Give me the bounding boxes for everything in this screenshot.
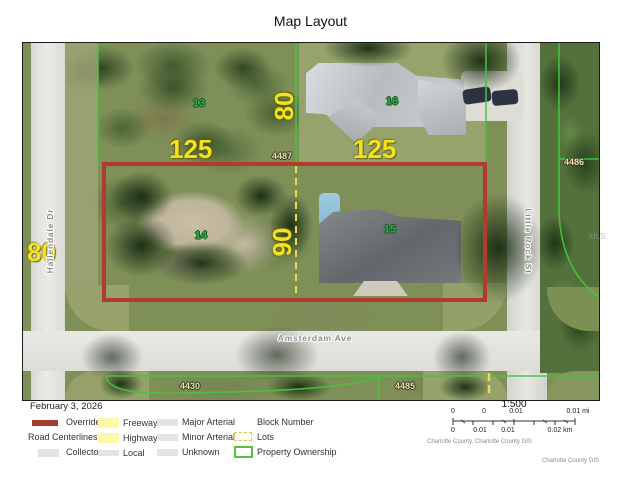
dimension-label: 125 [169, 136, 212, 162]
ownership-line [559, 43, 599, 297]
page-title: Map Layout [0, 13, 621, 29]
local-swatch [98, 450, 119, 456]
scale-mi-tick: 0 [451, 408, 455, 415]
gis-credit-right: Charlotte County GIS [542, 458, 599, 464]
legend-property-ownership-label: Property Ownership [257, 447, 337, 457]
minor-arterial-swatch [157, 434, 178, 441]
legend-road-centerlines-label: Road Centerlines [28, 432, 98, 442]
unknown-swatch [157, 449, 178, 456]
block-number: 4486 [564, 158, 584, 167]
collector-swatch [38, 449, 59, 457]
map-date: February 3, 2026 [30, 401, 102, 412]
legend-unknown-label: Unknown [182, 447, 220, 457]
major-arterial-swatch [157, 419, 178, 426]
ownership-arc [106, 376, 375, 393]
scale-mi-tick: 0.01 mi [567, 408, 590, 415]
street-label-little-rock: Little Rock St [524, 208, 533, 274]
block-number: 4485 [395, 382, 415, 391]
map-layout-page: Map Layout [0, 0, 621, 480]
parcel-linework [23, 43, 599, 400]
scale-km-tick: 0.01 [501, 427, 515, 434]
scale-mi-tick: 0.01 [509, 408, 523, 415]
override-swatch [32, 420, 58, 426]
map-canvas: 125 125 80 90 80 4487 4486 4430 4485 13 … [22, 42, 600, 401]
legend-freeway-label: Freeway [123, 418, 158, 428]
lot-number: 13 [193, 99, 205, 110]
block-number: 4430 [180, 382, 200, 391]
legend-minor-arterial-label: Minor Arterial [182, 432, 235, 442]
freeway-swatch [98, 418, 119, 428]
lot-number: 16 [386, 97, 398, 108]
gis-credit: Charlotte County, Charlotte County GIS [427, 439, 532, 445]
lot-number: 14 [195, 231, 207, 242]
scale-bar [449, 417, 581, 427]
property-ownership-swatch [234, 446, 253, 458]
legend-collector-label: Collector [66, 447, 102, 457]
legend-local-label: Local [123, 448, 145, 458]
scale-km-tick: 0 [451, 427, 455, 434]
scale-km-tick: 0.01 [473, 427, 487, 434]
scale-mi-tick: 0 [482, 408, 486, 415]
legend-major-arterial-label: Major Arterial [182, 417, 235, 427]
mls-watermark: MLS [589, 232, 605, 241]
block-number: 4487 [272, 152, 292, 161]
lots-swatch [234, 432, 252, 441]
highway-swatch [98, 433, 119, 443]
dimension-label: 125 [353, 136, 396, 162]
dimension-label: 80 [271, 88, 297, 124]
scale-km-tick: 0.02 km [548, 427, 573, 434]
street-label-hallendale: Hallendale Dr [46, 209, 55, 274]
legend-lots-label: Lots [257, 432, 274, 442]
lot-number: 15 [384, 225, 396, 236]
legend-highway-label: Highway [123, 433, 158, 443]
legend-block-number-label: Block Number [257, 417, 314, 427]
street-label-amsterdam: Amsterdam Ave [278, 334, 353, 343]
dimension-label: 90 [269, 224, 295, 260]
